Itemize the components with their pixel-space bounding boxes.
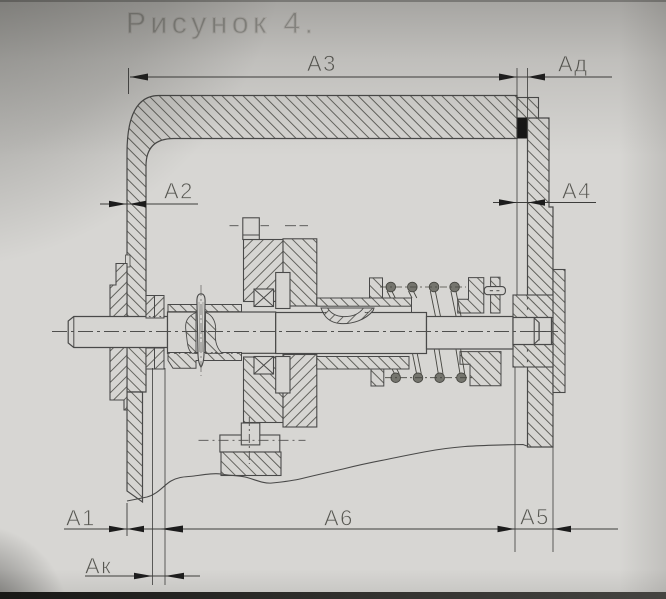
svg-text:Ад: Ад: [558, 52, 589, 77]
svg-text:А2: А2: [164, 179, 194, 204]
svg-text:Рисунок 4.: Рисунок 4.: [126, 7, 318, 40]
svg-text:А5: А5: [520, 505, 550, 530]
svg-text:А6: А6: [324, 506, 354, 531]
svg-text:А3: А3: [307, 51, 337, 76]
svg-text:А4: А4: [562, 179, 592, 204]
svg-text:Ак: Ак: [85, 554, 112, 579]
svg-text:А1: А1: [66, 506, 96, 531]
